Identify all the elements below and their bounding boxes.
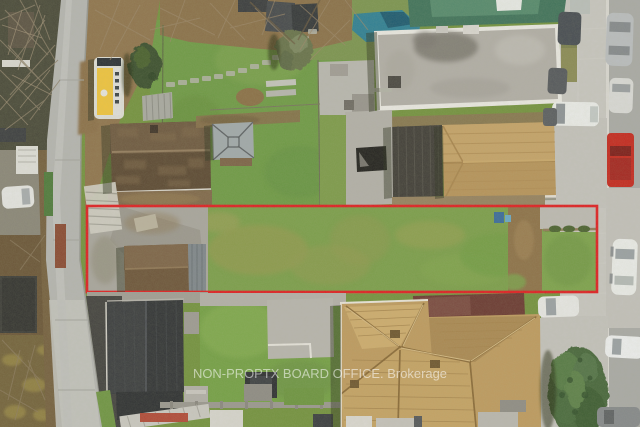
svg-text:NON-PROPTX BOARD OFFICE. Broke: NON-PROPTX BOARD OFFICE. Brokerage (193, 367, 447, 381)
